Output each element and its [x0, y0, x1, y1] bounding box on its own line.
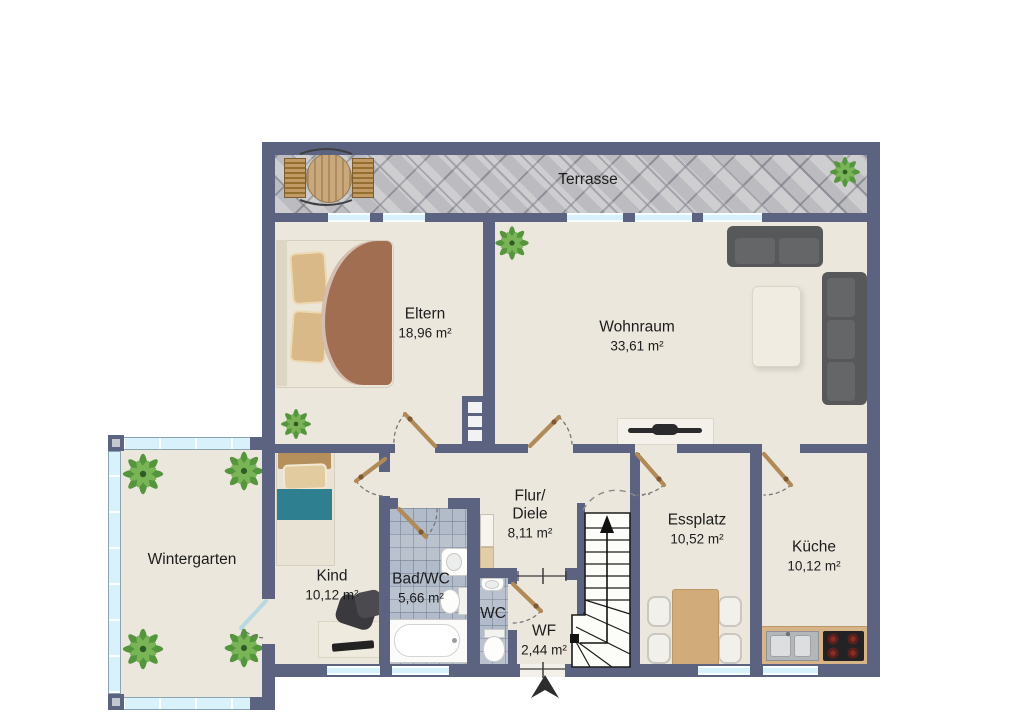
kid-bed-blanket [277, 489, 332, 520]
room-label-eltern: Eltern 18,96 m² [398, 306, 451, 341]
sofa-cushion [827, 320, 855, 359]
sofa-cushion [827, 362, 855, 401]
dining-chair [718, 596, 742, 627]
glass-wall [122, 437, 252, 450]
wall [467, 568, 517, 578]
wall [379, 496, 390, 664]
sofa-cushion [827, 278, 855, 317]
plant-icon [493, 224, 531, 262]
sofa-cushion [779, 238, 819, 264]
dining-table [672, 589, 719, 669]
wall [867, 142, 880, 677]
window [635, 213, 692, 222]
dining-chair [718, 633, 742, 664]
entrance-opening [520, 664, 565, 677]
shaft-cell [468, 402, 482, 413]
floor-plan: Terrasse Eltern 18,96 m² Wohnraum 33,61 … [0, 0, 1024, 724]
room-label-kind: Kind 10,12 m² [305, 568, 358, 603]
room-label-wintergarten: Wintergarten [148, 551, 237, 569]
terrace-round-table [306, 153, 352, 203]
bathroom-sink-basin [446, 553, 462, 571]
wall [573, 444, 635, 453]
wall [250, 437, 262, 450]
glass-wall [108, 451, 121, 694]
entrance-arrow-icon [531, 675, 559, 698]
cooktop [823, 631, 864, 661]
wall [435, 444, 528, 453]
tv-stand [652, 424, 678, 435]
sink-basin-left [770, 635, 791, 657]
room-label-wf: WF 2,44 m² [521, 623, 567, 658]
plant-icon [828, 155, 862, 189]
wall [250, 697, 275, 710]
dining-chair [647, 633, 671, 664]
wall [750, 453, 762, 664]
wall [577, 503, 585, 615]
wall [800, 444, 880, 453]
wall [677, 444, 762, 453]
window [328, 213, 370, 222]
wintergarten-door-opening [262, 599, 275, 644]
bathtub-faucet [452, 638, 457, 643]
window [763, 666, 818, 675]
window [703, 213, 762, 222]
wall [508, 630, 517, 664]
window [392, 666, 449, 675]
plant-icon [279, 407, 313, 441]
room-label-essplatz: Essplatz 10,52 m² [668, 512, 727, 547]
wall [448, 498, 480, 509]
wall [467, 509, 480, 664]
room-label-wohnraum: Wohnraum 33,61 m² [599, 319, 675, 354]
window [327, 666, 380, 675]
wall [630, 453, 640, 664]
wc-toilet-bowl [483, 636, 505, 662]
window [698, 666, 750, 675]
plant-icon [222, 626, 266, 670]
plant-icon [222, 449, 266, 493]
coffee-table [752, 286, 801, 367]
glass-wall-post [108, 694, 124, 710]
window [383, 213, 425, 222]
wall [379, 453, 390, 472]
wall [262, 444, 395, 453]
shaft-cell [468, 430, 482, 441]
wall [508, 578, 517, 584]
wc-sink-basin [485, 580, 499, 589]
terrace-chair-left [284, 158, 306, 198]
room-label-flur: Flur/ Diele 8,11 m² [508, 488, 553, 541]
hall-wardrobe [480, 514, 494, 547]
room-label-wc: WC [480, 605, 506, 623]
room-label-bad: Bad/WC 5,66 m² [392, 571, 450, 606]
wall [379, 498, 398, 509]
plant-icon [120, 626, 166, 672]
room-label-terrasse: Terrasse [558, 171, 617, 189]
bathtub-basin [394, 624, 460, 657]
window [567, 213, 623, 222]
sofa-cushion [735, 238, 775, 264]
glass-wall [122, 697, 252, 710]
pillow [283, 463, 328, 491]
dining-chair [647, 596, 671, 627]
double-bed-headboard [276, 240, 287, 386]
wall [262, 142, 880, 155]
terrace-chair-right [352, 158, 374, 198]
glass-wall-post [108, 435, 124, 451]
shaft-cell [468, 416, 482, 427]
plant-icon [120, 451, 166, 497]
room-label-kueche: Küche 10,12 m² [787, 539, 840, 574]
sink-basin-right [794, 635, 811, 657]
